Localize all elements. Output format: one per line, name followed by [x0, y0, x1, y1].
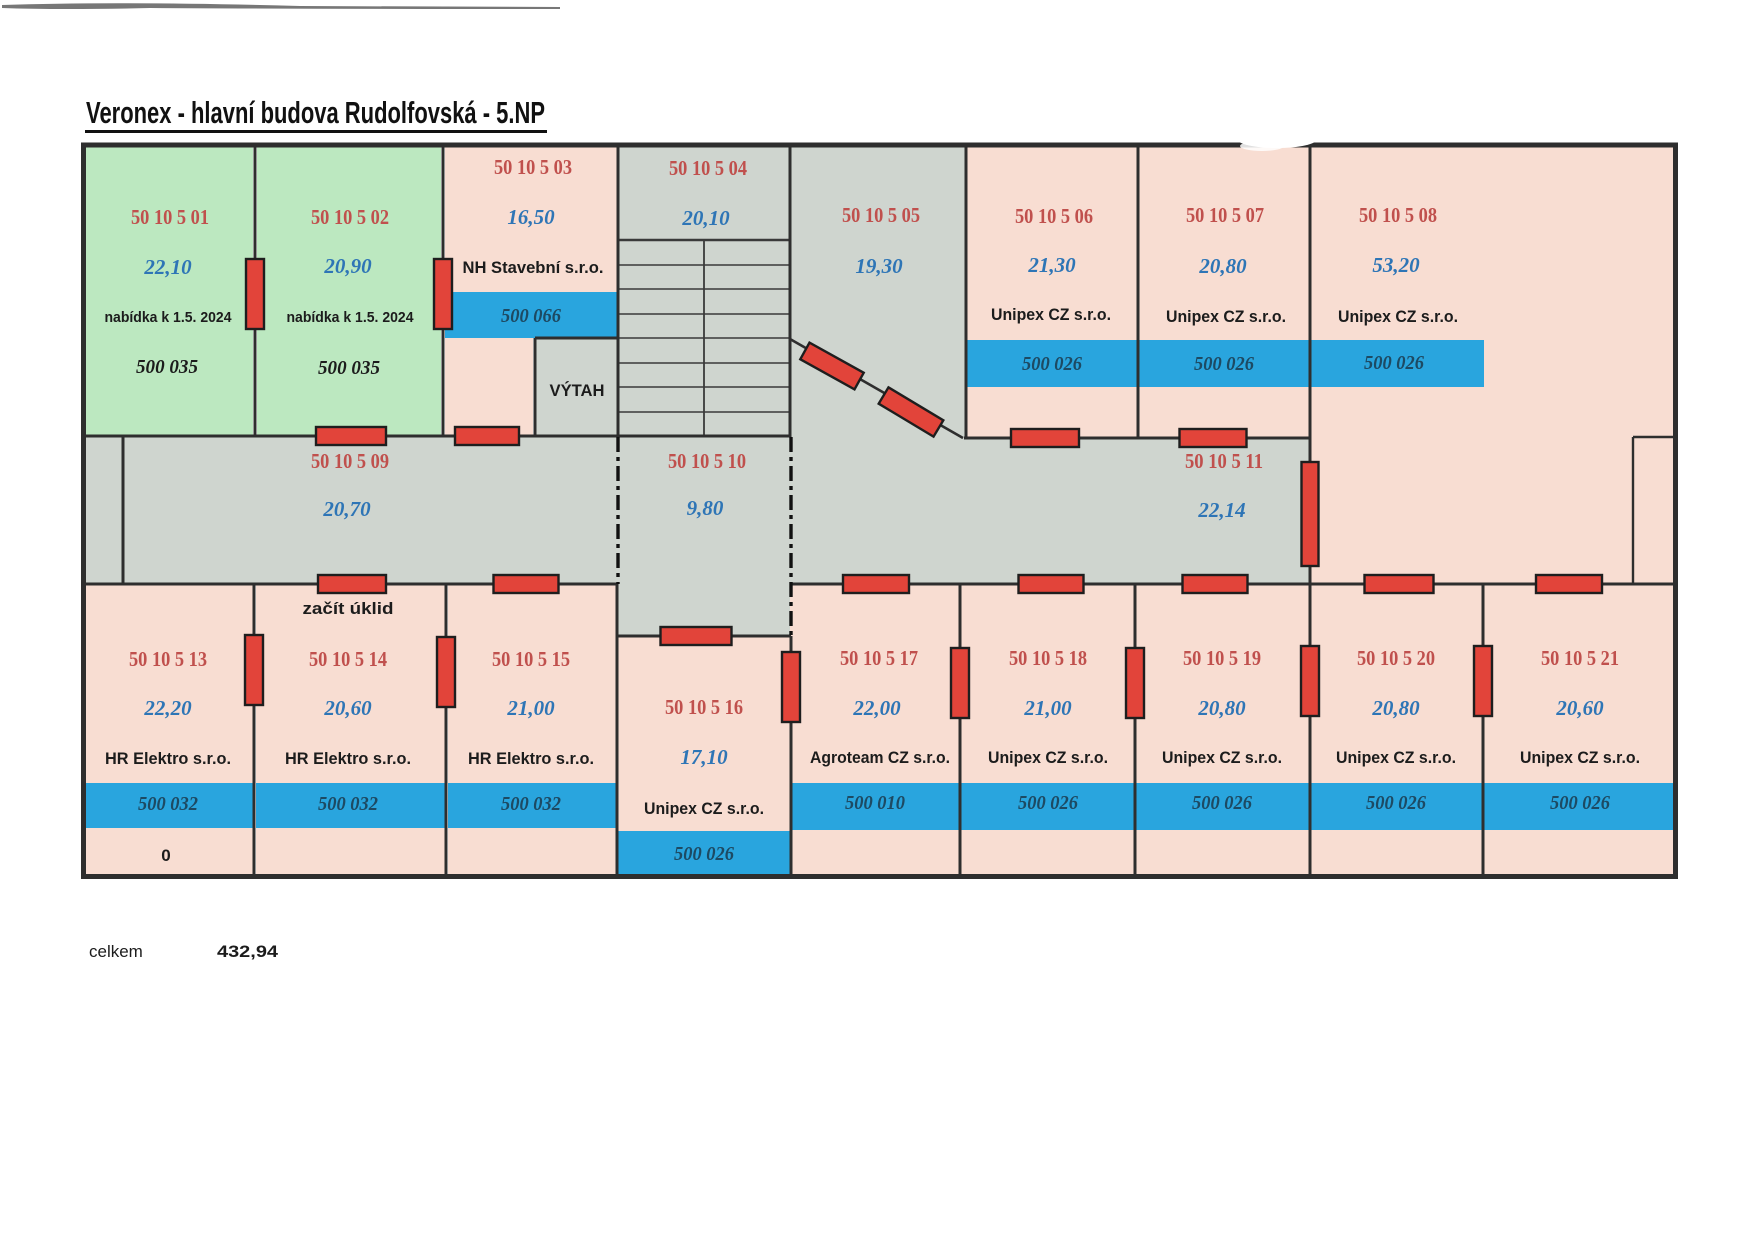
svg-text:HR Elektro s.r.o.: HR Elektro s.r.o.: [105, 749, 231, 768]
svg-text:20,90: 20,90: [323, 254, 372, 278]
svg-text:20,80: 20,80: [1197, 696, 1246, 720]
svg-text:19,30: 19,30: [855, 254, 903, 278]
svg-text:50 10 5 18: 50 10 5 18: [1009, 646, 1087, 670]
svg-text:9,80: 9,80: [687, 496, 724, 520]
svg-text:500 026: 500 026: [1194, 353, 1254, 375]
svg-text:50 10 5 04: 50 10 5 04: [669, 156, 747, 180]
svg-text:NH Stavební s.r.o.: NH Stavební s.r.o.: [463, 258, 604, 277]
svg-text:20,10: 20,10: [681, 206, 730, 230]
svg-text:16,50: 16,50: [507, 205, 555, 229]
svg-text:Veronex - hlavní budova Rudolf: Veronex - hlavní budova Rudolfovská - 5.…: [86, 95, 545, 130]
svg-text:začít úklid: začít úklid: [303, 599, 394, 618]
svg-text:432,94: 432,94: [217, 942, 279, 961]
svg-text:50 10 5 05: 50 10 5 05: [842, 203, 920, 227]
svg-text:50 10 5 10: 50 10 5 10: [668, 449, 746, 473]
svg-text:500 066: 500 066: [501, 305, 561, 327]
svg-text:HR Elektro s.r.o.: HR Elektro s.r.o.: [468, 749, 594, 768]
svg-text:500 035: 500 035: [136, 356, 198, 378]
svg-text:50 10 5 01: 50 10 5 01: [131, 205, 209, 229]
svg-text:500 026: 500 026: [1366, 792, 1426, 814]
svg-text:500 026: 500 026: [1550, 792, 1610, 814]
svg-text:50 10 5 09: 50 10 5 09: [311, 449, 389, 473]
svg-text:celkem: celkem: [89, 942, 143, 961]
svg-text:50 10 5 20: 50 10 5 20: [1357, 646, 1435, 670]
svg-text:53,20: 53,20: [1372, 253, 1420, 277]
svg-text:50 10 5 03: 50 10 5 03: [494, 155, 572, 179]
svg-text:50 10 5 17: 50 10 5 17: [840, 646, 918, 670]
svg-text:Unipex CZ s.r.o.: Unipex CZ s.r.o.: [1338, 307, 1458, 326]
svg-text:20,60: 20,60: [323, 696, 372, 720]
svg-text:20,80: 20,80: [1371, 696, 1420, 720]
svg-text:Unipex CZ s.r.o.: Unipex CZ s.r.o.: [991, 305, 1111, 324]
svg-text:nabídka k 1.5. 2024: nabídka k 1.5. 2024: [287, 309, 415, 326]
svg-text:Unipex CZ s.r.o.: Unipex CZ s.r.o.: [1336, 748, 1456, 767]
svg-text:21,00: 21,00: [1023, 696, 1072, 720]
svg-text:50 10 5 19: 50 10 5 19: [1183, 646, 1261, 670]
svg-text:500 010: 500 010: [845, 792, 905, 814]
svg-text:20,60: 20,60: [1555, 696, 1604, 720]
svg-text:20,70: 20,70: [322, 497, 371, 521]
svg-text:22,14: 22,14: [1197, 498, 1245, 522]
svg-text:VÝTAH: VÝTAH: [550, 381, 605, 400]
svg-text:nabídka k 1.5. 2024: nabídka k 1.5. 2024: [105, 309, 233, 326]
svg-text:21,30: 21,30: [1027, 253, 1076, 277]
svg-text:50 10 5 07: 50 10 5 07: [1186, 203, 1264, 227]
svg-text:17,10: 17,10: [680, 745, 728, 769]
svg-text:50 10 5 11: 50 10 5 11: [1185, 449, 1263, 473]
svg-text:22,20: 22,20: [143, 696, 192, 720]
svg-text:21,00: 21,00: [506, 696, 555, 720]
svg-text:500 035: 500 035: [318, 357, 380, 379]
svg-text:22,00: 22,00: [852, 696, 901, 720]
svg-text:Agroteam CZ s.r.o.: Agroteam CZ s.r.o.: [810, 748, 950, 767]
svg-text:500 032: 500 032: [318, 793, 378, 815]
svg-text:Unipex CZ s.r.o.: Unipex CZ s.r.o.: [644, 799, 764, 818]
svg-text:Unipex CZ s.r.o.: Unipex CZ s.r.o.: [1166, 307, 1286, 326]
svg-text:50 10 5 08: 50 10 5 08: [1359, 203, 1437, 227]
svg-text:50 10 5 02: 50 10 5 02: [311, 205, 389, 229]
svg-text:500 026: 500 026: [674, 843, 734, 865]
svg-text:22,10: 22,10: [143, 255, 192, 279]
svg-text:500 026: 500 026: [1192, 792, 1252, 814]
svg-text:Unipex CZ s.r.o.: Unipex CZ s.r.o.: [1162, 748, 1282, 767]
svg-text:Unipex CZ s.r.o.: Unipex CZ s.r.o.: [1520, 748, 1640, 767]
svg-text:50 10 5 15: 50 10 5 15: [492, 647, 570, 671]
svg-text:50 10 5 06: 50 10 5 06: [1015, 204, 1093, 228]
svg-text:50 10 5 16: 50 10 5 16: [665, 695, 743, 719]
svg-text:500 026: 500 026: [1364, 352, 1424, 374]
svg-text:50 10 5 21: 50 10 5 21: [1541, 646, 1619, 670]
svg-text:500 032: 500 032: [138, 793, 198, 815]
svg-text:HR Elektro s.r.o.: HR Elektro s.r.o.: [285, 749, 411, 768]
svg-text:50 10 5 14: 50 10 5 14: [309, 647, 387, 671]
svg-text:500 026: 500 026: [1022, 353, 1082, 375]
svg-text:500 026: 500 026: [1018, 792, 1078, 814]
svg-text:500 032: 500 032: [501, 793, 561, 815]
svg-text:20,80: 20,80: [1198, 254, 1247, 278]
svg-text:0: 0: [161, 846, 170, 865]
svg-text:Unipex CZ s.r.o.: Unipex CZ s.r.o.: [988, 748, 1108, 767]
svg-text:50 10 5 13: 50 10 5 13: [129, 647, 207, 671]
